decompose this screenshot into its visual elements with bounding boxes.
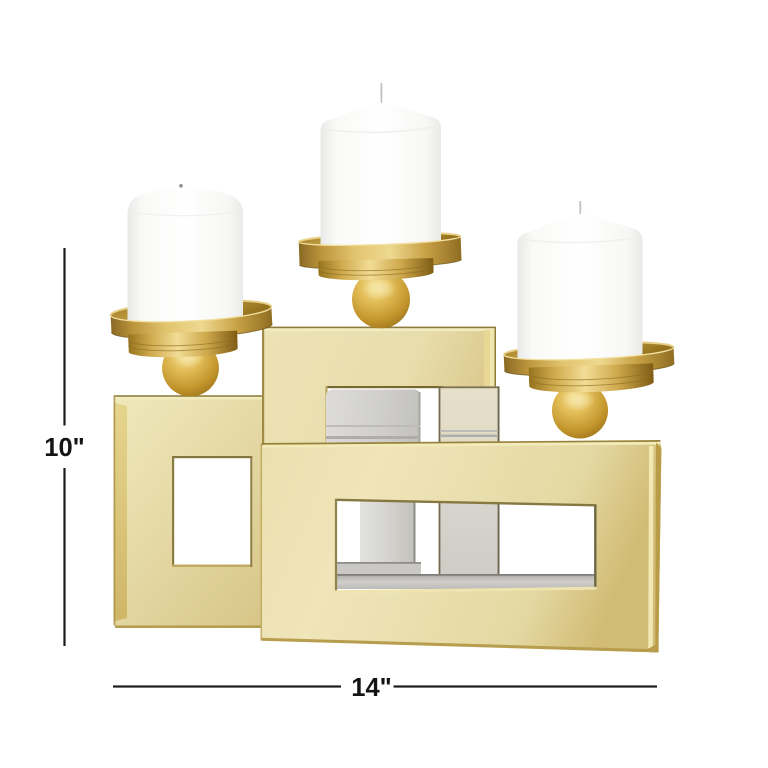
svg-text:10": 10" <box>44 434 84 462</box>
svg-text:14": 14" <box>351 674 391 702</box>
